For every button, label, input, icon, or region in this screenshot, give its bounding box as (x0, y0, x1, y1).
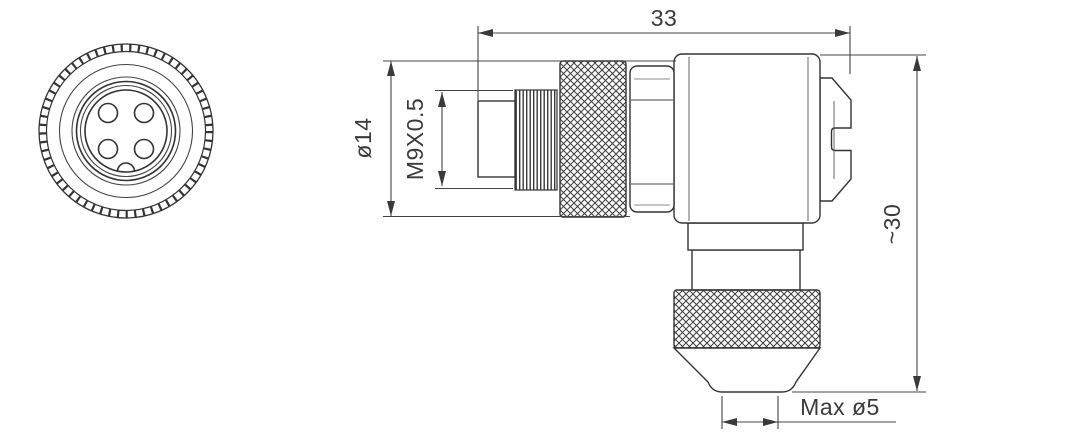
dim-thread-spec-label: M9X0.5 (402, 98, 428, 180)
side-view (478, 54, 851, 392)
technical-drawing-canvas: 33 ø14 M9X0.5 ~30 Max ø5 (0, 0, 1067, 442)
arrowhead (722, 418, 737, 426)
neck-step-1 (688, 223, 803, 250)
arrowhead (438, 92, 446, 107)
coupling-nut-knurl (560, 61, 626, 217)
arrowhead (913, 56, 921, 71)
thread-m9 (515, 90, 557, 190)
dim-coupling-diameter-label: ø14 (350, 117, 376, 158)
arrowhead (835, 29, 850, 37)
pin-hole-2 (135, 104, 154, 123)
m9-connector-drawing: 33 ø14 M9X0.5 ~30 Max ø5 (0, 0, 1067, 442)
arrowhead (387, 61, 395, 76)
pin-face-circle (85, 90, 167, 172)
dim-overall-length-label: 33 (651, 5, 678, 31)
arrowhead (763, 418, 778, 426)
plug-tip (478, 101, 515, 177)
cable-gland-knurl (674, 290, 820, 348)
arrowhead (438, 171, 446, 186)
arrowhead (478, 29, 493, 37)
dim-max-cable-diameter: Max ø5 (722, 394, 896, 429)
connector-body (674, 54, 820, 223)
dim-max-cable-diameter-label: Max ø5 (800, 394, 880, 420)
cable-gland-taper (674, 348, 820, 392)
dim-overall-height-label: ~30 (879, 204, 905, 245)
pin-hole-4 (135, 140, 154, 159)
arrowhead (913, 376, 921, 391)
pin-hole-1 (99, 104, 118, 123)
front-view (39, 44, 213, 218)
back-cap-screw (820, 78, 851, 201)
pin-hole-3 (99, 140, 118, 159)
arrowhead (387, 201, 395, 216)
neck-step-2 (692, 250, 800, 290)
hex-flats (630, 66, 674, 212)
